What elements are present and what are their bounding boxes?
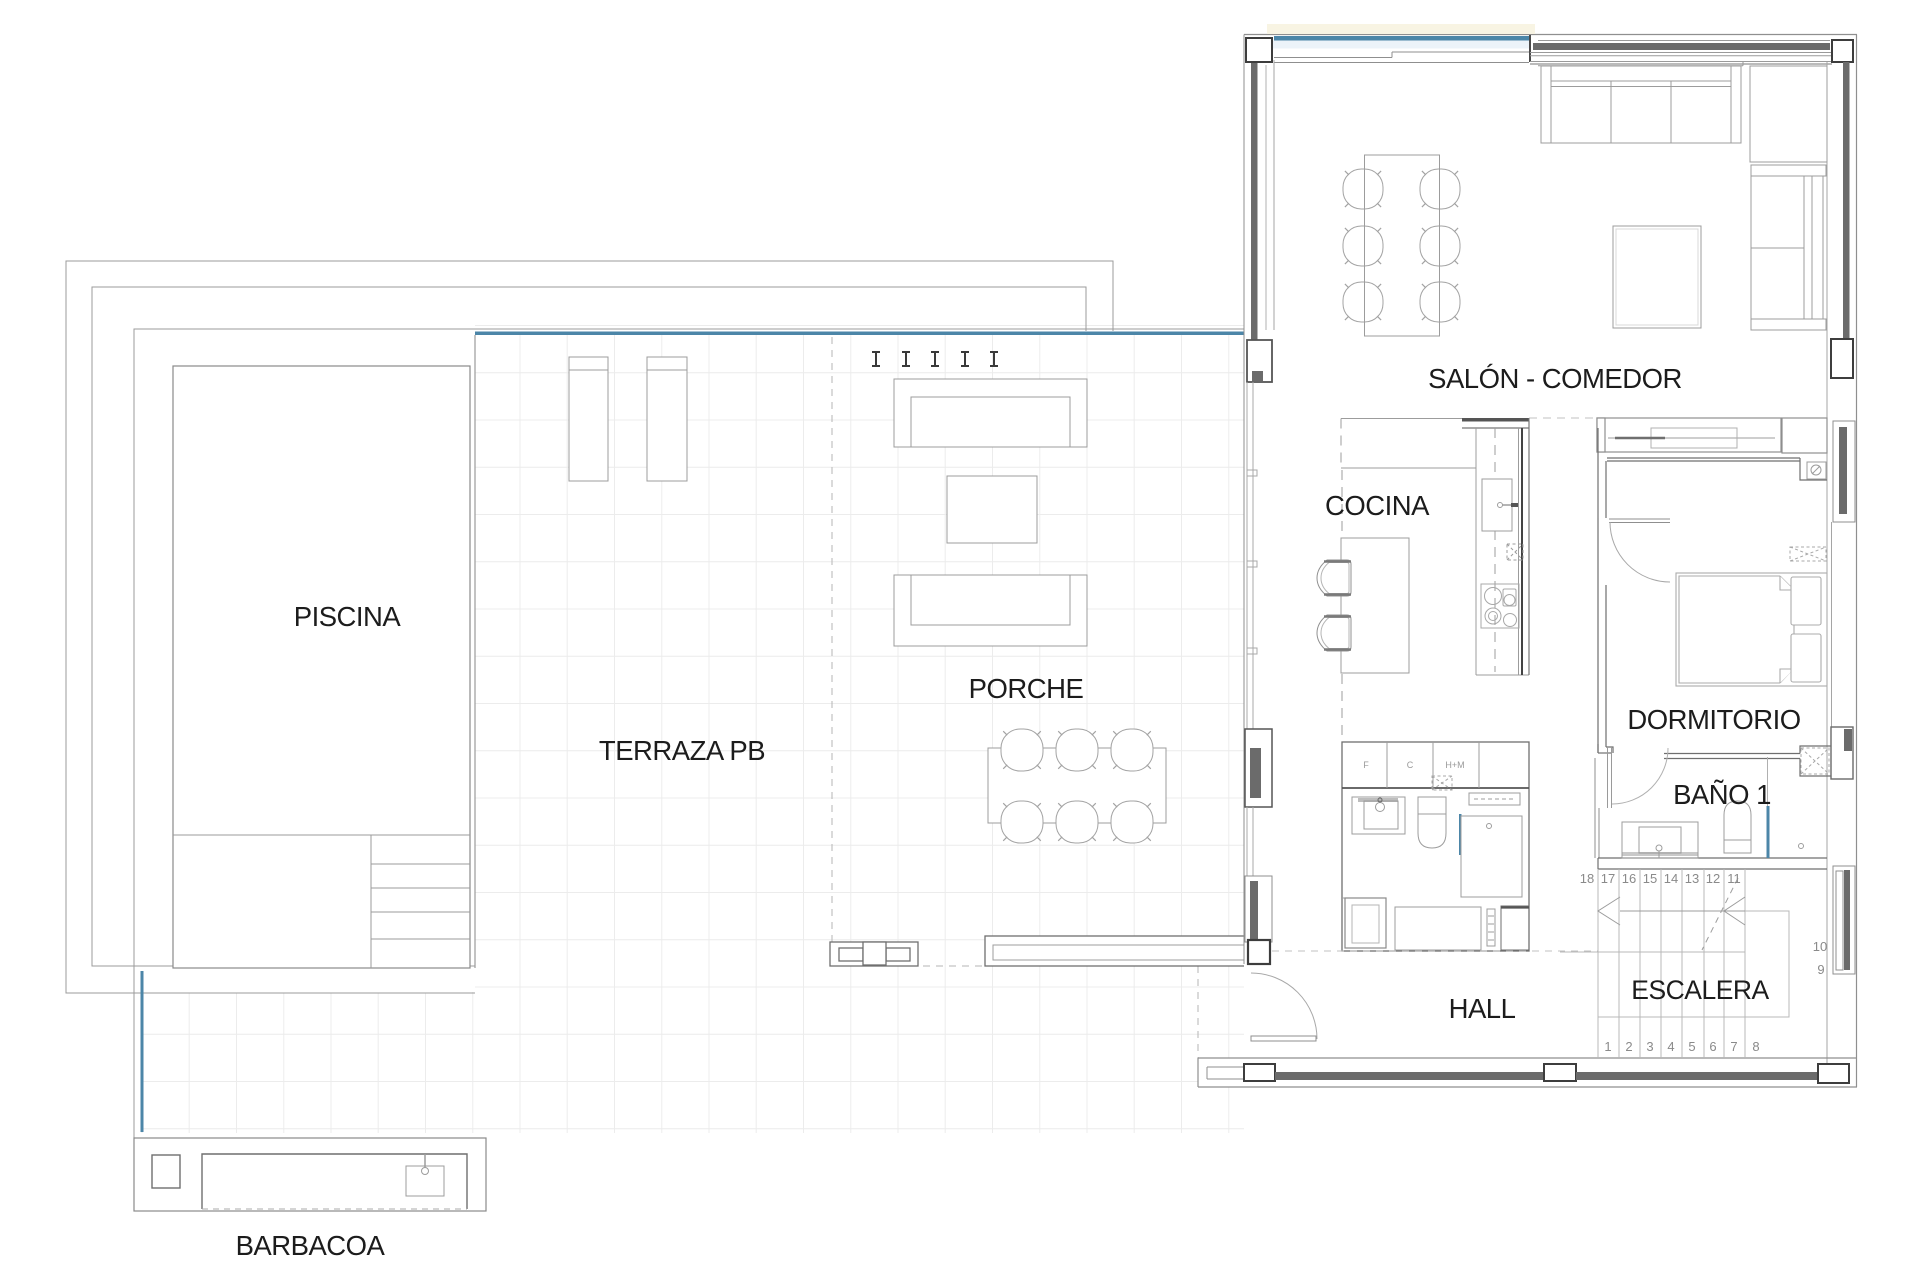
svg-text:BAÑO 1: BAÑO 1 xyxy=(1673,779,1771,810)
svg-text:HALL: HALL xyxy=(1449,993,1516,1024)
svg-text:5: 5 xyxy=(1688,1039,1695,1054)
svg-text:PORCHE: PORCHE xyxy=(969,673,1084,704)
svg-text:8: 8 xyxy=(1752,1039,1759,1054)
svg-text:DORMITORIO: DORMITORIO xyxy=(1627,704,1800,735)
svg-text:2: 2 xyxy=(1625,1039,1632,1054)
svg-text:7: 7 xyxy=(1730,1039,1737,1054)
svg-text:H+M: H+M xyxy=(1445,760,1464,770)
svg-text:F: F xyxy=(1363,760,1369,770)
svg-text:14: 14 xyxy=(1664,871,1678,886)
svg-text:4: 4 xyxy=(1667,1039,1674,1054)
svg-text:15: 15 xyxy=(1643,871,1657,886)
svg-text:SALÓN - COMEDOR: SALÓN - COMEDOR xyxy=(1428,363,1682,394)
svg-text:10: 10 xyxy=(1813,939,1827,954)
svg-text:1: 1 xyxy=(1604,1039,1611,1054)
svg-text:C: C xyxy=(1407,760,1414,770)
svg-text:11: 11 xyxy=(1727,871,1741,886)
svg-text:16: 16 xyxy=(1622,871,1636,886)
svg-text:PISCINA: PISCINA xyxy=(294,601,402,632)
svg-text:13: 13 xyxy=(1685,871,1699,886)
svg-text:12: 12 xyxy=(1706,871,1720,886)
svg-text:9: 9 xyxy=(1817,962,1824,977)
svg-text:BARBACOA: BARBACOA xyxy=(236,1230,386,1261)
svg-text:6: 6 xyxy=(1709,1039,1716,1054)
svg-text:17: 17 xyxy=(1601,871,1615,886)
svg-text:TERRAZA PB: TERRAZA PB xyxy=(599,735,765,766)
svg-text:ESCALERA: ESCALERA xyxy=(1631,975,1769,1005)
svg-text:3: 3 xyxy=(1646,1039,1653,1054)
svg-text:COCINA: COCINA xyxy=(1325,490,1430,521)
svg-text:18: 18 xyxy=(1580,871,1594,886)
